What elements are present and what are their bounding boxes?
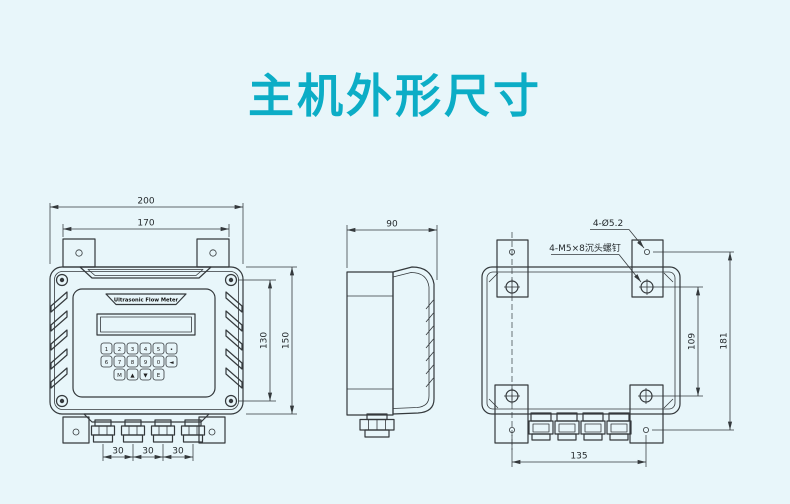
front-body — [50, 267, 243, 422]
rear-dimensions: 109 181 135 — [512, 252, 734, 467]
cable-gland — [152, 420, 175, 442]
key-label: 8 — [131, 360, 135, 366]
cable-gland — [182, 420, 205, 442]
countersunk-screw — [638, 388, 654, 404]
dim-front-overall-height: 150 — [282, 332, 292, 349]
key-label: 9 — [144, 360, 148, 366]
cable-gland — [92, 420, 115, 442]
note-screw: 4-M5×8沉头螺钉 — [549, 243, 621, 254]
countersunk-screw — [639, 279, 655, 295]
dim-rear-screw-height: 109 — [688, 333, 698, 350]
key-label: ◄ — [169, 360, 174, 366]
dimension-drawing: Ultrasonic Flow Meter 1 2 3 4 5 • 6 — [0, 0, 790, 504]
key-label: M — [117, 373, 122, 379]
key-label: 2 — [118, 347, 122, 353]
note-bracket-hole: 4-Ø5.2 — [593, 218, 623, 229]
dim-front-screw-height: 130 — [260, 332, 270, 349]
side-cable-gland — [360, 414, 394, 437]
key-label: 0 — [157, 360, 161, 366]
cable-gland — [555, 413, 579, 440]
bracket-hole — [210, 250, 216, 256]
front-dimensions: 200 170 130 150 30 30 30 — [50, 197, 297, 462]
key-label: 7 — [118, 360, 122, 366]
rear-view: 4-Ø5.2 4-M5×8沉头螺钉 109 181 135 — [482, 218, 734, 467]
front-view: Ultrasonic Flow Meter 1 2 3 4 5 • 6 — [50, 197, 297, 462]
side-dimensions: 90 — [347, 220, 437, 281]
bracket-hole — [73, 429, 79, 435]
cable-gland — [529, 413, 553, 440]
key-label: ▼ — [143, 373, 148, 379]
dim-rear-hole-height: 181 — [720, 332, 730, 349]
front-cable-glands — [92, 420, 205, 442]
keypad: 1 2 3 4 5 • 6 7 8 9 0 — [101, 343, 177, 380]
bracket-hole — [644, 249, 649, 254]
bracket-hole — [76, 250, 82, 256]
side-body — [347, 267, 434, 415]
side-view: 90 — [347, 220, 437, 438]
cable-gland — [607, 413, 631, 440]
page: 主机外形尺寸 — [0, 0, 790, 504]
key-label: • — [170, 347, 173, 353]
dim-gland-pitch-2: 30 — [142, 447, 154, 457]
key-label: ▲ — [130, 373, 135, 379]
key-label: 6 — [105, 360, 109, 366]
rear-cable-glands — [529, 413, 631, 440]
dim-gland-pitch-1: 30 — [112, 447, 124, 457]
key-label: 4 — [144, 347, 148, 353]
dim-gland-pitch-3: 30 — [172, 447, 184, 457]
key-label: 3 — [131, 347, 135, 353]
brand-label: Ultrasonic Flow Meter — [114, 298, 179, 304]
bracket-hole — [643, 427, 648, 432]
key-label: 5 — [157, 347, 161, 353]
cable-gland — [581, 413, 605, 440]
dim-front-overall-width: 200 — [137, 197, 154, 207]
key-label: E — [157, 373, 161, 379]
dim-rear-bottom-spacing: 135 — [570, 452, 587, 462]
cable-gland — [122, 420, 145, 442]
bracket-hole — [209, 429, 215, 435]
countersunk-screw — [504, 388, 520, 404]
dim-side-depth: 90 — [386, 220, 398, 230]
key-label: 1 — [105, 347, 109, 353]
rear-top-brackets — [497, 232, 663, 450]
dim-front-mount-spacing: 170 — [137, 219, 154, 229]
side-cover-ribs — [426, 300, 434, 387]
front-top-brackets — [63, 239, 229, 267]
